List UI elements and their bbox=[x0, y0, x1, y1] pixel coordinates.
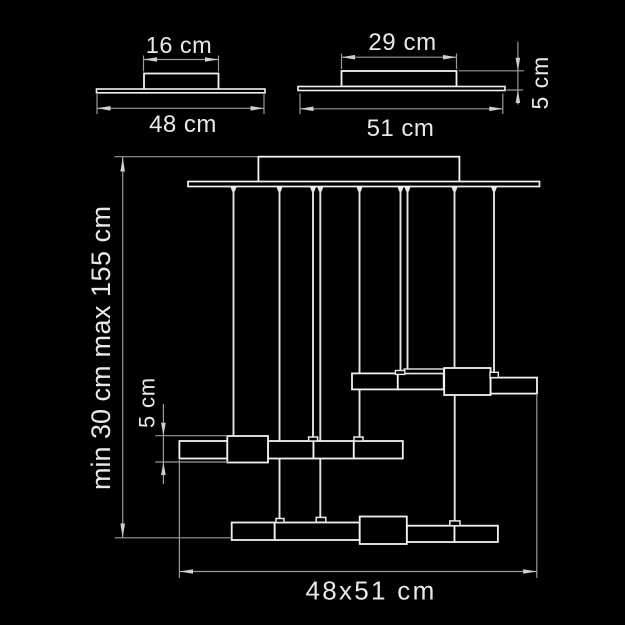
svg-text:48 cm: 48 cm bbox=[149, 111, 217, 138]
svg-text:51 cm: 51 cm bbox=[367, 115, 435, 142]
svg-text:min 30 cm: min 30 cm bbox=[86, 365, 116, 490]
svg-text:5 cm: 5 cm bbox=[527, 56, 553, 110]
svg-text:max 155 cm: max 155 cm bbox=[86, 205, 116, 357]
svg-text:48x51 cm: 48x51 cm bbox=[305, 576, 436, 606]
svg-text:5 cm: 5 cm bbox=[135, 377, 160, 428]
svg-text:29 cm: 29 cm bbox=[368, 29, 436, 56]
svg-text:16 cm: 16 cm bbox=[146, 32, 213, 58]
